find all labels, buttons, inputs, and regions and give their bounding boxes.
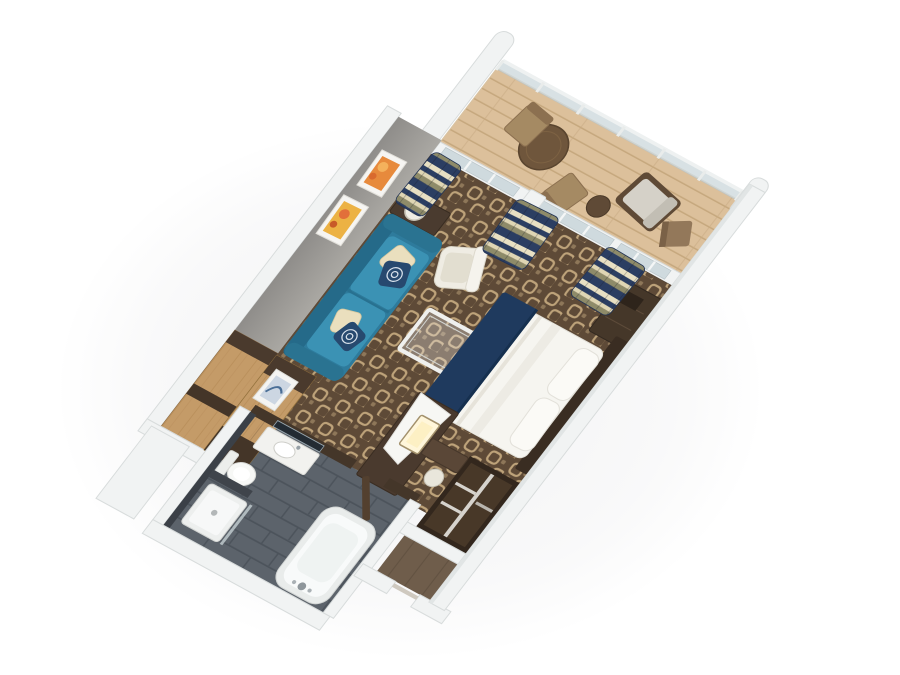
floorplan-svg: 3D aerial floor-plan rendering of a stat… bbox=[0, 0, 900, 675]
floorplan-rendering: 3D aerial floor-plan rendering of a stat… bbox=[0, 0, 900, 675]
balcony-corner-chair bbox=[659, 221, 693, 247]
bathroom-door bbox=[362, 476, 370, 522]
